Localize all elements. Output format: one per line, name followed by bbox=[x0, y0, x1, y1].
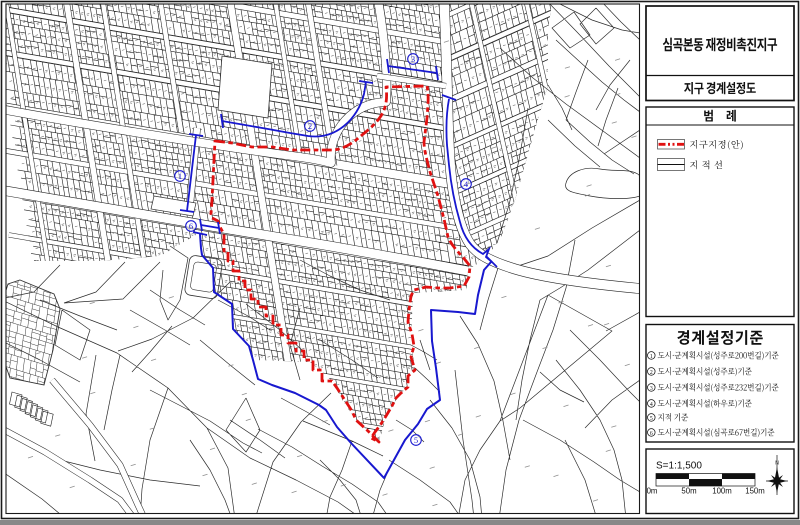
svg-text:50m: 50m bbox=[681, 487, 696, 496]
svg-text:6: 6 bbox=[189, 221, 193, 231]
svg-text:0m: 0m bbox=[647, 487, 658, 496]
svg-text:3: 3 bbox=[411, 54, 415, 64]
svg-text:4: 4 bbox=[650, 402, 653, 408]
svg-text:2: 2 bbox=[650, 370, 653, 376]
svg-text:2: 2 bbox=[308, 121, 312, 131]
svg-text:N: N bbox=[775, 461, 779, 467]
svg-text:5: 5 bbox=[650, 416, 653, 422]
svg-text:6: 6 bbox=[650, 431, 653, 437]
svg-text:S=1:1,500: S=1:1,500 bbox=[656, 461, 702, 472]
svg-text:100m: 100m bbox=[712, 487, 732, 496]
svg-text:5: 5 bbox=[414, 435, 418, 445]
svg-text:150m: 150m bbox=[745, 487, 765, 496]
svg-text:3: 3 bbox=[650, 386, 653, 392]
svg-text:1: 1 bbox=[178, 171, 182, 181]
svg-text:1: 1 bbox=[650, 354, 653, 360]
